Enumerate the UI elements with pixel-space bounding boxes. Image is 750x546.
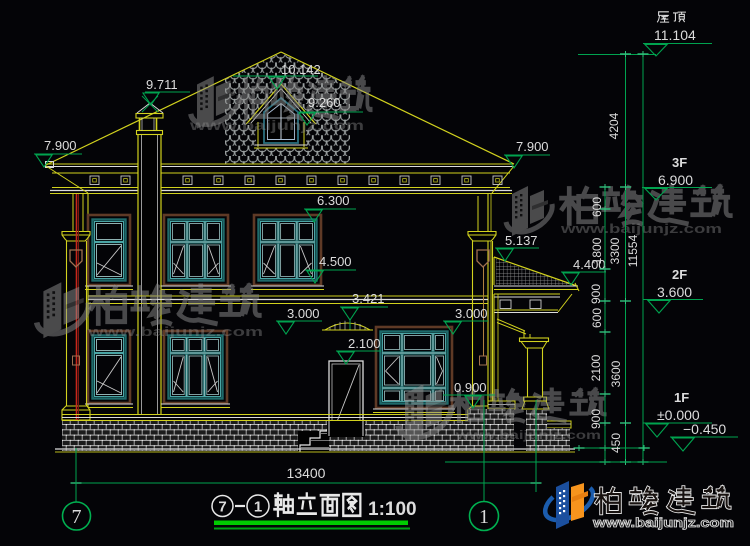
svg-text:3.421: 3.421 xyxy=(352,291,385,306)
svg-text:3.000: 3.000 xyxy=(287,306,320,321)
svg-text:450: 450 xyxy=(609,433,623,453)
svg-text:11554: 11554 xyxy=(626,234,640,267)
svg-text:6.300: 6.300 xyxy=(317,193,350,208)
svg-text:600: 600 xyxy=(590,197,604,217)
svg-text:7: 7 xyxy=(72,506,82,528)
svg-text:3.600: 3.600 xyxy=(657,284,692,300)
svg-text:3600: 3600 xyxy=(609,360,623,387)
svg-text:10.142: 10.142 xyxy=(281,62,321,77)
svg-text:7.900: 7.900 xyxy=(516,139,549,154)
svg-text:3.000: 3.000 xyxy=(455,306,488,321)
svg-text:9.260: 9.260 xyxy=(308,95,341,110)
svg-text:4.500: 4.500 xyxy=(319,254,352,269)
svg-text:900: 900 xyxy=(589,284,603,304)
svg-text:2F: 2F xyxy=(672,267,687,282)
svg-text:600: 600 xyxy=(590,308,604,328)
svg-text:1:100: 1:100 xyxy=(368,499,417,520)
svg-text:4204: 4204 xyxy=(607,112,621,139)
svg-text:1800: 1800 xyxy=(590,237,604,264)
svg-text:11.104: 11.104 xyxy=(654,27,696,43)
svg-text:0.900: 0.900 xyxy=(454,380,487,395)
svg-text:6.900: 6.900 xyxy=(658,172,693,188)
svg-text:1F: 1F xyxy=(674,390,689,405)
svg-text:7.900: 7.900 xyxy=(44,138,77,153)
svg-text:3300: 3300 xyxy=(608,237,622,264)
svg-text:−0.450: −0.450 xyxy=(683,421,726,437)
svg-text:www.baijunjz.com: www.baijunjz.com xyxy=(560,221,722,236)
svg-text:5.137: 5.137 xyxy=(505,233,538,248)
svg-text:www.baijunjz.com: www.baijunjz.com xyxy=(189,117,364,133)
svg-text:3F: 3F xyxy=(672,155,687,170)
svg-text:2100: 2100 xyxy=(589,354,603,381)
svg-text:13400: 13400 xyxy=(287,465,326,481)
svg-text:www.baijunjz.com: www.baijunjz.com xyxy=(592,516,734,530)
svg-text:2.100: 2.100 xyxy=(348,336,381,351)
svg-text:www.baijunjz.com: www.baijunjz.com xyxy=(455,428,601,442)
svg-text:900: 900 xyxy=(589,409,603,429)
svg-text:1: 1 xyxy=(479,506,489,528)
svg-text:www.baijunjz.com: www.baijunjz.com xyxy=(86,324,263,339)
svg-text:9.711: 9.711 xyxy=(146,77,178,92)
svg-text:7: 7 xyxy=(218,499,226,516)
svg-text:1: 1 xyxy=(254,499,262,516)
